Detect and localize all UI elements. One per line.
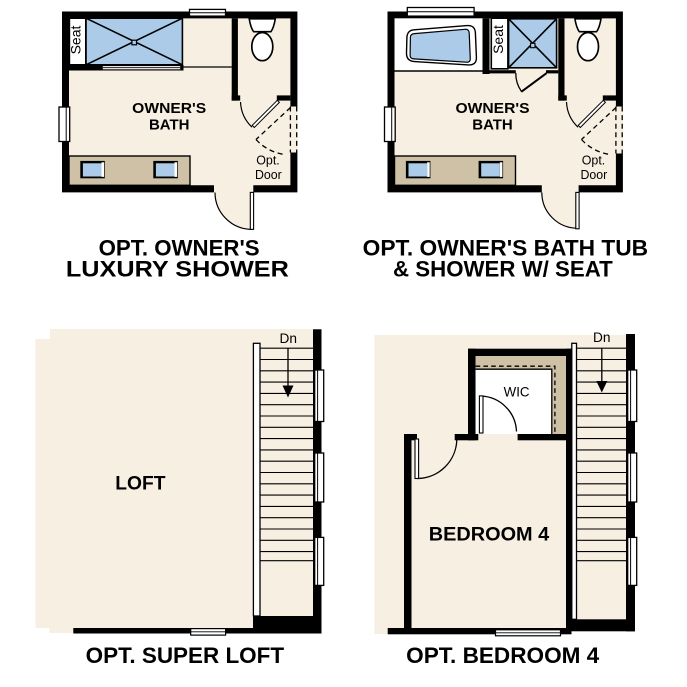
svg-text:OPT. SUPER LOFT: OPT. SUPER LOFT [86,643,285,668]
svg-text:Seat: Seat [490,25,506,54]
svg-text:BEDROOM 4: BEDROOM 4 [429,524,549,546]
svg-text:BATH: BATH [472,117,513,134]
svg-text:WIC: WIC [504,384,530,400]
svg-text:Dn: Dn [593,330,611,345]
svg-text:Opt.: Opt. [582,152,606,167]
svg-text:LOFT: LOFT [115,473,165,494]
svg-text:Opt.: Opt. [256,152,280,167]
svg-text:LUXURY SHOWER: LUXURY SHOWER [66,256,289,281]
svg-text:Dn: Dn [280,331,298,346]
svg-text:OWNER'S: OWNER'S [456,100,530,117]
svg-text:Seat: Seat [68,25,84,54]
svg-text:Door: Door [255,167,282,182]
svg-text:& SHOWER W/ SEAT: & SHOWER W/ SEAT [393,256,613,281]
svg-text:OWNER'S: OWNER'S [132,100,206,117]
svg-text:BATH: BATH [149,117,190,134]
svg-text:OPT. BEDROOM 4: OPT. BEDROOM 4 [406,643,600,668]
svg-text:Door: Door [581,167,608,182]
